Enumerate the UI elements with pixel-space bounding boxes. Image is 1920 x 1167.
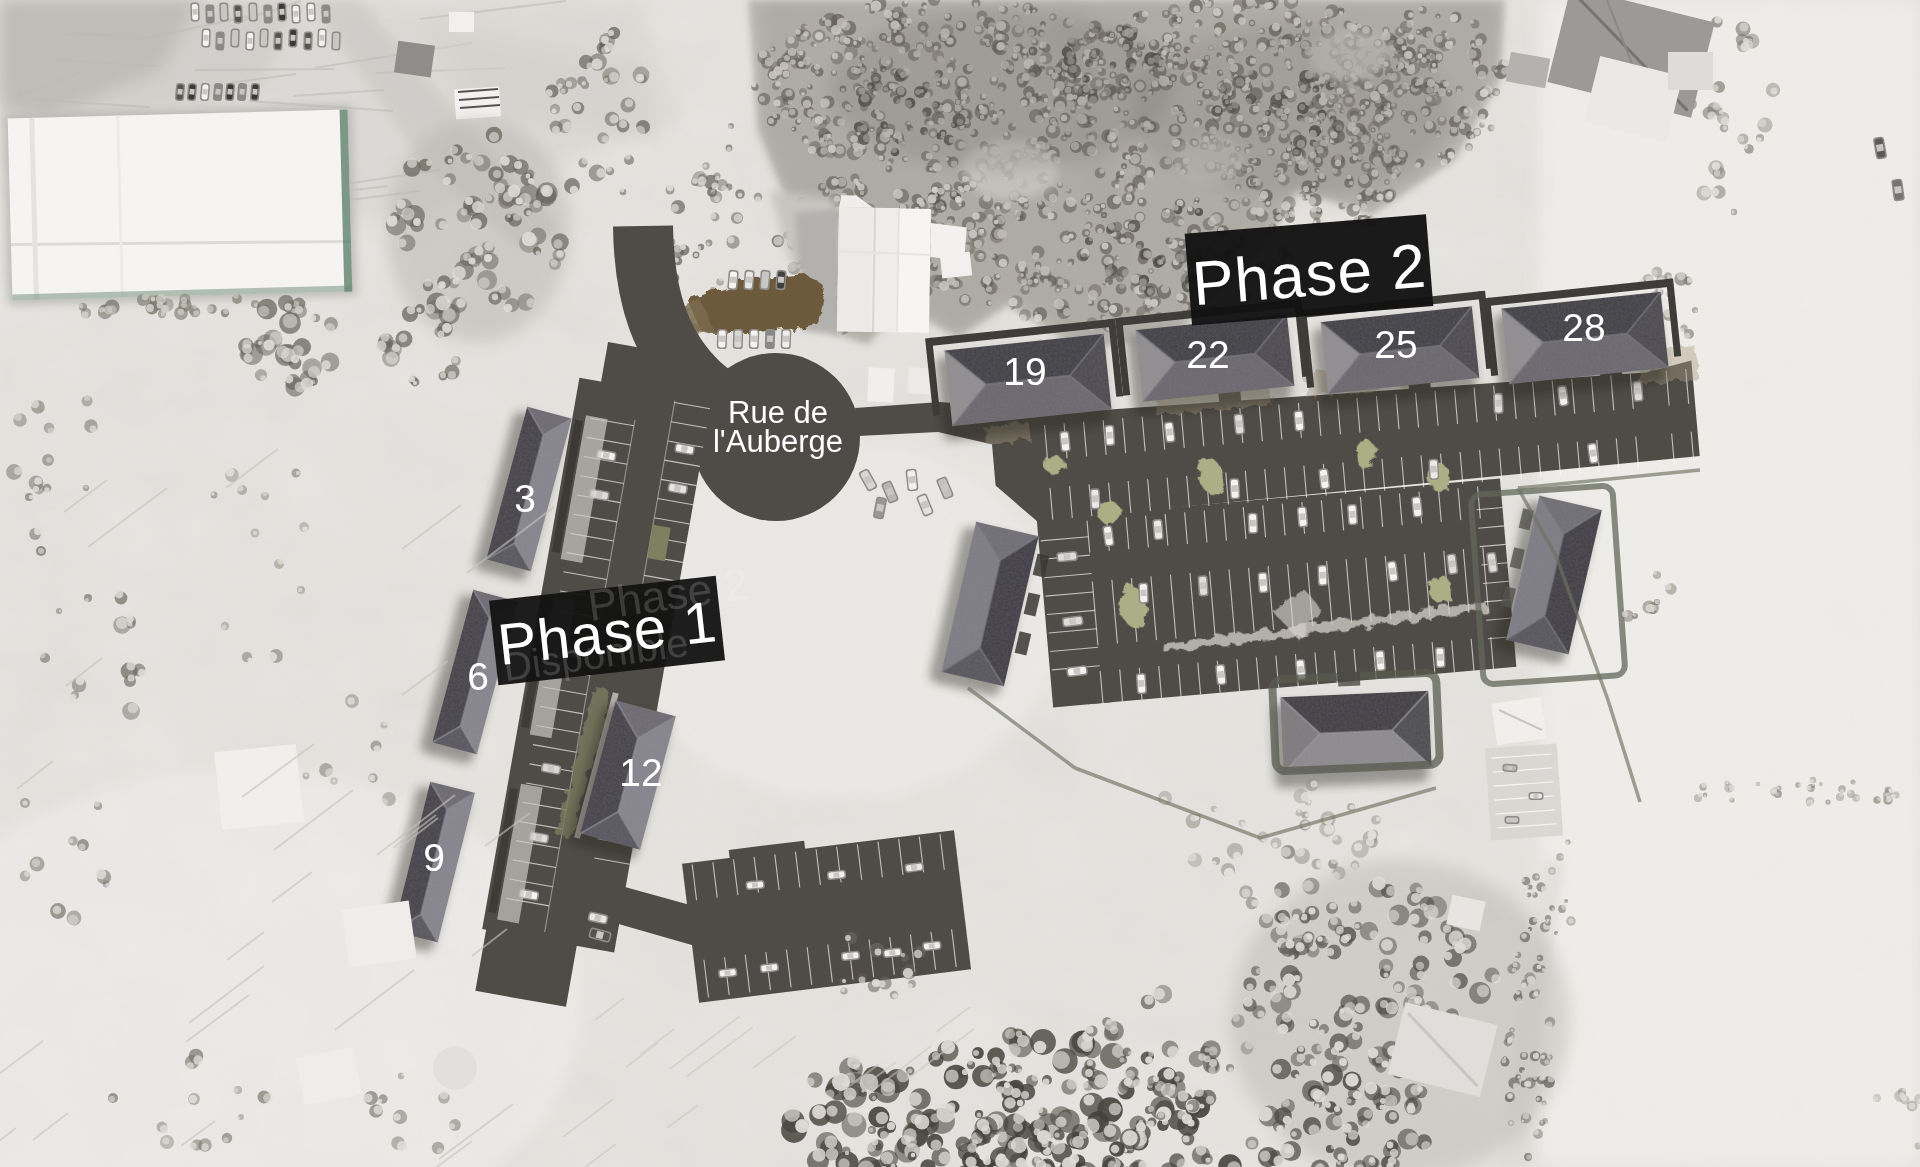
svg-text:12: 12 — [619, 751, 662, 794]
svg-text:25: 25 — [1374, 323, 1417, 366]
svg-text:l'Auberge: l'Auberge — [713, 424, 843, 459]
svg-text:9: 9 — [423, 836, 445, 879]
svg-text:19: 19 — [1003, 350, 1046, 393]
svg-text:3: 3 — [514, 477, 536, 520]
svg-text:22: 22 — [1186, 333, 1229, 376]
svg-text:6: 6 — [467, 655, 489, 698]
svg-text:28: 28 — [1562, 306, 1605, 349]
